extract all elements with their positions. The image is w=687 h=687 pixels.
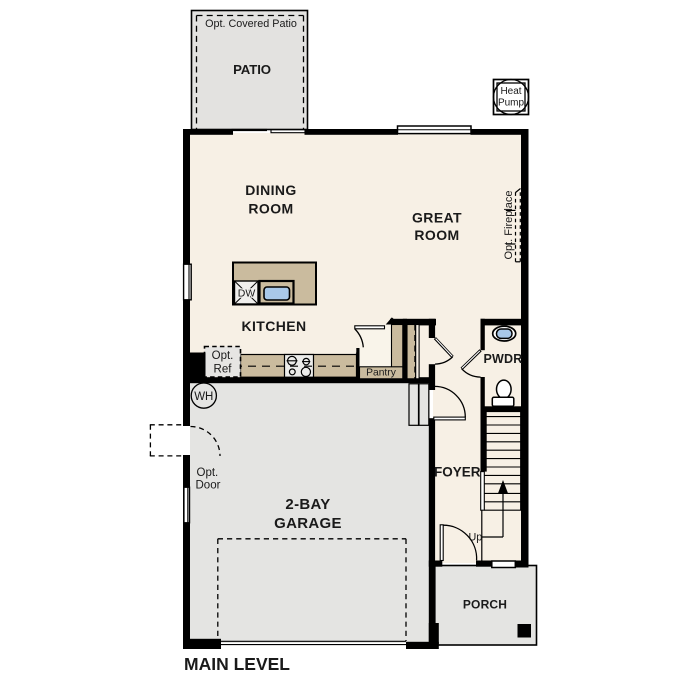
svg-text:ROOM: ROOM	[248, 201, 293, 217]
svg-text:GREAT: GREAT	[412, 210, 462, 226]
svg-text:PWDR: PWDR	[484, 352, 523, 366]
svg-text:GARAGE: GARAGE	[274, 515, 342, 532]
svg-text:Opt.: Opt.	[212, 350, 234, 362]
svg-text:KITCHEN: KITCHEN	[241, 318, 306, 334]
svg-text:ROOM: ROOM	[414, 227, 459, 243]
svg-text:Pantry: Pantry	[366, 367, 397, 378]
svg-text:PATIO: PATIO	[233, 62, 271, 77]
svg-text:DW: DW	[238, 288, 256, 300]
svg-text:Door: Door	[196, 480, 221, 492]
svg-text:PORCH: PORCH	[463, 598, 507, 612]
svg-text:Opt. Fireplace: Opt. Fireplace	[503, 190, 515, 259]
svg-text:FOYER: FOYER	[434, 465, 481, 480]
svg-text:Up: Up	[469, 532, 483, 544]
svg-text:MAIN LEVEL: MAIN LEVEL	[184, 654, 290, 674]
svg-text:2-BAY: 2-BAY	[285, 496, 330, 513]
svg-text:Opt.: Opt.	[197, 467, 219, 479]
svg-text:DINING: DINING	[245, 182, 296, 198]
svg-text:WH: WH	[194, 391, 213, 403]
svg-text:Pump: Pump	[498, 98, 525, 109]
svg-text:Heat: Heat	[500, 86, 521, 97]
svg-text:Opt. Covered Patio: Opt. Covered Patio	[205, 18, 297, 30]
svg-text:Ref: Ref	[214, 364, 233, 376]
